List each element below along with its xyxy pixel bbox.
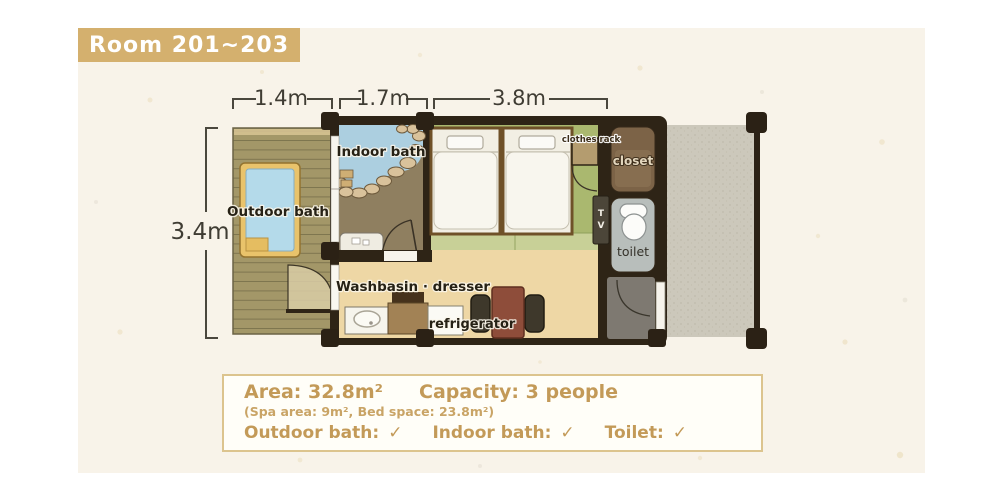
terrace-post-top xyxy=(746,112,767,133)
dim-label-3-8m: 3.8m xyxy=(492,86,546,110)
bath-doorway-gap xyxy=(384,251,417,261)
label-outdoor-bath: Outdoor bath xyxy=(227,204,329,220)
label-toilet: toilet xyxy=(617,244,649,259)
dim-label-1-7m: 1.7m xyxy=(356,86,410,110)
terrace xyxy=(667,112,767,349)
terrace-rail xyxy=(754,130,760,335)
capacity-value: Capacity: 3 people xyxy=(419,381,618,403)
label-clothes-rack: clothes rack xyxy=(562,135,621,145)
label-refrigerator: refrigerator xyxy=(429,317,516,332)
toilet-bowl xyxy=(622,214,646,240)
bath-stool xyxy=(340,170,353,178)
feature-toilet: Toilet: ✓ xyxy=(605,423,687,444)
chair-right xyxy=(525,295,544,332)
label-washbasin-dresser: Washbasin · dresser xyxy=(336,279,490,295)
bed-1-pillow xyxy=(447,136,483,149)
bath-bucket xyxy=(341,180,352,187)
outdoor-deck xyxy=(233,128,336,334)
tub-step xyxy=(246,238,268,251)
info-line-sub: (Spa area: 9m², Bed space: 23.8m²) xyxy=(244,404,761,420)
check-icon: ✓ xyxy=(673,423,687,444)
deck-edge xyxy=(234,129,331,135)
label-tv-t: T xyxy=(598,209,605,219)
bed-2-mattress xyxy=(506,152,569,229)
area-value: Area: 32.8m² xyxy=(244,381,383,403)
dim-label-3-4m: 3.4m xyxy=(171,219,230,245)
feature-outdoor-bath: Outdoor bath: ✓ xyxy=(244,423,402,444)
bed-1 xyxy=(431,128,500,234)
feature-label: Outdoor bath: xyxy=(244,423,379,444)
feature-indoor-bath: Indoor bath: ✓ xyxy=(432,423,574,444)
bath-washstand-soap xyxy=(363,240,369,245)
washbasin-sink xyxy=(354,311,380,327)
feature-label: Toilet: xyxy=(605,423,664,444)
check-icon: ✓ xyxy=(388,423,402,444)
terrace-post-bottom xyxy=(746,328,767,349)
entrance-doorway-gap xyxy=(656,282,665,336)
check-icon: ✓ xyxy=(560,423,574,444)
label-tv-v: V xyxy=(598,221,605,231)
tv xyxy=(593,196,609,244)
washbasin-drain xyxy=(369,321,373,325)
bed-1-mattress xyxy=(434,152,497,229)
terrace-floor xyxy=(667,125,757,337)
info-line-features: Outdoor bath: ✓ Indoor bath: ✓ Toilet: ✓ xyxy=(244,423,761,444)
dim-label-1-4m: 1.4m xyxy=(254,86,308,110)
label-indoor-bath: Indoor bath xyxy=(336,144,425,160)
bed-2-pillow xyxy=(519,136,555,149)
info-line-main: Area: 32.8m² Capacity: 3 people xyxy=(244,381,761,403)
tatami-border-strip xyxy=(431,233,598,250)
entrance-hall xyxy=(607,277,655,339)
feature-label: Indoor bath: xyxy=(432,423,551,444)
label-closet: closet xyxy=(613,154,654,168)
bath-washstand-tap xyxy=(352,238,360,244)
room-info-box: Area: 32.8m² Capacity: 3 people (Spa are… xyxy=(222,374,763,452)
